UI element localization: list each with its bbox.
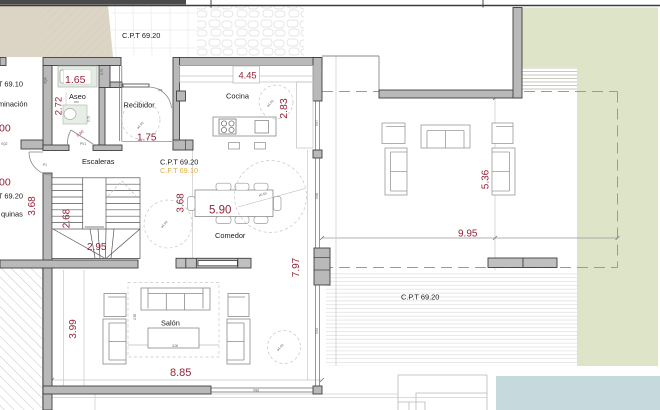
- svg-text:VS9: VS9: [315, 328, 319, 334]
- svg-text:5.90: 5.90: [209, 205, 231, 217]
- svg-text:VS7: VS7: [315, 120, 319, 126]
- svg-text:quinas: quinas: [1, 210, 23, 219]
- svg-text:1.75: 1.75: [137, 133, 157, 144]
- svg-text:P1: P1: [43, 163, 47, 167]
- svg-text:9.95: 9.95: [458, 229, 478, 240]
- svg-text:Recibidor: Recibidor: [124, 101, 156, 110]
- svg-text:PE: PE: [159, 89, 163, 93]
- svg-text:0.79: 0.79: [100, 69, 104, 75]
- svg-text:VQA: VQA: [44, 76, 48, 84]
- svg-text:3.99: 3.99: [68, 319, 79, 339]
- svg-text:oro: oro: [74, 100, 79, 104]
- svg-text:00: 00: [0, 177, 11, 189]
- svg-text:T 69.10: T 69.10: [0, 80, 23, 89]
- svg-text:2.95: 2.95: [87, 242, 107, 253]
- svg-text:T 69.20: T 69.20: [0, 192, 23, 201]
- svg-text:Comedor: Comedor: [215, 231, 246, 240]
- svg-text:8.85: 8.85: [170, 367, 191, 379]
- svg-text:Salón: Salón: [161, 319, 180, 328]
- svg-text:2.68: 2.68: [62, 208, 73, 228]
- svg-text:C.F.T 69.10: C.F.T 69.10: [160, 166, 198, 175]
- svg-text:C.P.T 69.20: C.P.T 69.20: [122, 31, 160, 40]
- svg-text:VS6: VS6: [315, 193, 319, 199]
- svg-text:1.65: 1.65: [65, 74, 86, 86]
- svg-text:minación: minación: [0, 100, 28, 109]
- svg-text:PV1: PV1: [80, 142, 86, 146]
- svg-text:3.68: 3.68: [27, 196, 38, 216]
- svg-text:5.36: 5.36: [481, 169, 492, 189]
- svg-text:Escaleras: Escaleras: [82, 157, 115, 166]
- svg-text:VS9: VS9: [253, 389, 259, 393]
- svg-text:0.70: 0.70: [87, 116, 91, 122]
- svg-text:2.50: 2.50: [133, 314, 137, 320]
- svg-text:00: 00: [0, 123, 11, 135]
- svg-text:4.45: 4.45: [239, 71, 257, 81]
- svg-text:2.72: 2.72: [54, 97, 65, 116]
- svg-text:VQ2: VQ2: [1, 142, 8, 146]
- svg-text:2.83: 2.83: [278, 98, 290, 119]
- svg-text:C.P.T 69.20: C.P.T 69.20: [401, 293, 439, 302]
- svg-text:3.68: 3.68: [176, 193, 187, 213]
- svg-text:Cocina: Cocina: [226, 92, 250, 101]
- svg-text:7.97: 7.97: [291, 257, 302, 277]
- svg-text:3.00: 3.00: [172, 344, 178, 348]
